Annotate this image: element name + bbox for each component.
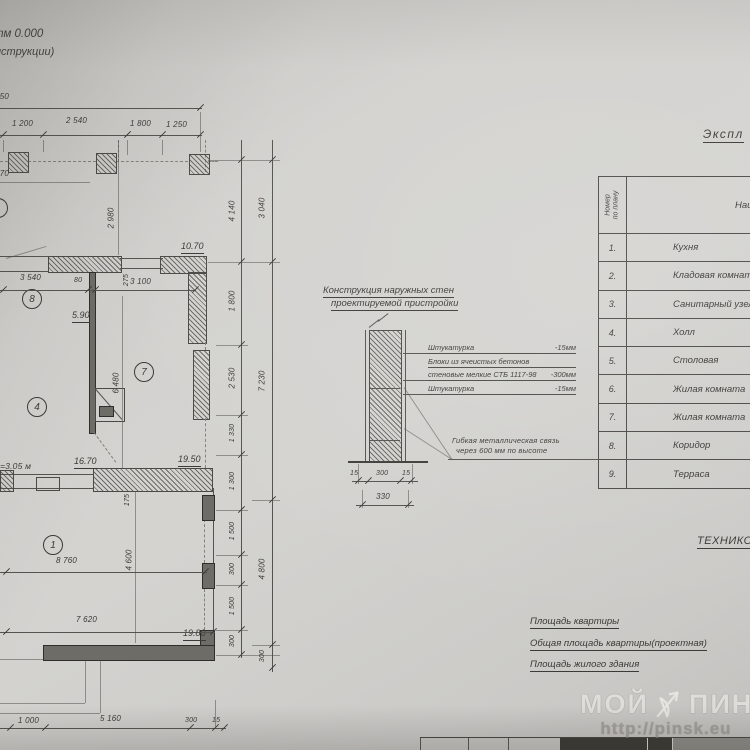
layer-label-row: Блоки из ячеистых бетонов [428,357,576,368]
leader-line [404,428,452,460]
axis-line [205,418,206,468]
room-number-circle: 1 [43,535,63,555]
dimension-line [241,140,242,658]
row-name: Коридор [627,432,710,459]
detail-note-line2: через 600 мм по высоте [456,447,547,455]
extension-line [216,555,248,556]
wall [188,272,207,344]
column [96,153,117,174]
block-joint [370,440,400,441]
explication-header-row: Номер по плану Наимен [599,177,750,233]
num-header-line2: по плану [612,191,619,220]
wall-pier [202,495,215,521]
watermark: МОЙ ПИНСК http://pinsk.eu [580,688,750,739]
column [8,152,29,173]
window [36,477,60,491]
dim-label: 15 [212,717,220,725]
extension-line [216,415,248,416]
dim-label: 1 000 [18,717,39,726]
break-symbol [378,313,389,322]
room-area-label: 16.70 [74,457,97,469]
room-number-circle: 7 [134,362,154,382]
room-number: 8 [29,294,35,305]
dim-label: 300 [185,717,197,725]
title-block-line [508,738,509,750]
block-joint [370,388,400,389]
dim-label: 7 620 [76,616,97,625]
layer-value: -15мм [555,384,576,393]
leader-line [404,387,453,460]
leader-line [403,380,428,381]
layer-value: -300мм [551,370,576,379]
dimension-line [135,492,136,643]
title-block-line [468,738,469,750]
dim-label: 1 200 [12,120,33,129]
note-underline [448,459,606,460]
row-number: 8. [599,432,627,459]
row-number: 4. [599,319,627,346]
pinsk-logo-icon [654,688,684,720]
title-block-dark-cell [560,738,672,750]
terrace-line [85,660,86,703]
wall-line [0,271,48,272]
dim-label: 300 [229,635,237,647]
extension-line [162,140,163,155]
extension-line [216,510,248,511]
axis-line [28,161,96,162]
axis-line [116,161,188,162]
layer-name: стеновые мелкие СТБ 1117-98 [428,370,537,379]
dim-label: 3 100 [130,278,151,287]
row-name: Терраса [627,460,710,487]
row-number: 1. [599,234,627,261]
axis-line [0,161,8,162]
dim-label: 300 [229,563,237,575]
name-header-cell: Наимен [627,177,750,233]
num-header-line1: Номер [604,194,611,216]
table-row: 6.Жилая комната [599,374,750,402]
layer-value: -15мм [555,343,576,352]
dim-label: 6 480 [113,372,122,393]
dimension-line [118,140,119,255]
dim-label: 3 040 [259,197,268,218]
detail-title-line2: проектируемой пристройки [331,299,458,311]
dimension-line [0,182,90,183]
extension-line [216,585,248,586]
dim-label: 1 300 [229,472,237,491]
row-name: Столовая [627,347,719,374]
dim-label: 1 950 [0,93,9,102]
wall-line [0,659,43,660]
room-number: 4 [34,402,40,413]
table-row: 7.Жилая комната [599,403,750,431]
watermark-brand-right: ПИНСК [689,689,750,720]
dim-label: 1 250 [166,121,187,130]
detail-note-line1: Гибкая металлическая связь [452,437,560,445]
dim-label: 330 [376,493,390,502]
dim-label: 1 500 [229,522,237,541]
layer-label-row: Штукатурка -15мм [428,384,576,395]
blueprint-photo: тм 0.000 нструкции) 1 950 1 200 2 540 1 … [0,0,750,750]
extension-line [127,140,128,155]
tech-line3: Площадь жилого здания [530,660,639,672]
dim-label: 11 770 [0,170,9,179]
row-number: 2. [599,262,627,289]
window-line [120,268,163,269]
exterior-wall [43,645,215,661]
room-number-circle: 8 [22,289,42,309]
dim-label: 7 230 [259,370,268,391]
wall-line [204,589,205,630]
row-number: 5. [599,347,627,374]
watermark-url: http://pinsk.eu [580,719,750,739]
dim-label: 1 500 [229,597,237,616]
row-name: Кухня [627,234,698,261]
tick-mark [197,104,204,111]
layer-name: Штукатурка [428,384,474,393]
extension-line [3,140,4,152]
table-row: 4.Холл [599,318,750,346]
dim-label: 80 [74,277,82,285]
extension-line [216,630,248,631]
dimension-line [272,140,273,672]
dim-label: 4 140 [229,200,238,221]
wall [0,470,14,492]
column [189,154,210,175]
row-number: 6. [599,375,627,402]
room-number: 1 [50,540,56,551]
title-block-line [647,738,648,750]
room-number: 7 [141,367,147,378]
extension-line [252,500,280,501]
elevation-note-line2: нструкции) [0,46,54,58]
wall-pier [202,563,215,589]
layer-label-row: стеновые мелкие СТБ 1117-98 -300мм [428,370,576,381]
dim-label: 8 760 [56,557,77,566]
dimension-line [0,290,196,291]
extension-line [216,345,248,346]
height-note: =3.05 м [0,462,31,471]
dimension-line [0,108,202,109]
watermark-brand-left: МОЙ [580,689,649,720]
dim-label: 1 800 [130,120,151,129]
layer-label-row: Штукатурка -15мм [428,343,576,354]
plaster-line [365,330,366,461]
plaster-line [405,330,406,461]
extension-line [43,140,44,152]
dim-label: 15 [350,470,358,478]
terrace-line [0,703,85,704]
explication-table: Номер по плану Наимен 1.Кухня 2.Кладовая… [598,176,750,489]
room-area-label: 19.50 [178,455,201,467]
extension-line [216,655,280,656]
table-row: 2.Кладовая комната [599,261,750,289]
terrace-line [100,660,101,713]
extension-line [252,645,280,646]
table-row: 5.Столовая [599,346,750,374]
row-number: 7. [599,404,627,431]
dim-label: 5 160 [100,715,121,724]
dim-label: 275 [123,274,131,286]
row-name: Кладовая комната [627,262,750,289]
explication-title: Экспл [703,128,744,143]
row-name: Жилая комната [627,404,745,431]
extension-line [200,112,201,152]
table-row: 8.Коридор [599,431,750,459]
layer-name: Штукатурка [428,343,474,352]
dim-label: 2 530 [229,367,238,388]
dim-label: 2 540 [66,117,87,126]
leader-line [403,394,428,395]
table-row: 3.Санитарный узел [599,290,750,318]
door-swing [94,432,117,462]
ground-line [348,461,428,463]
door-swing [6,246,47,259]
dim-label: 4 600 [126,549,135,570]
row-name: Санитарный узел [627,291,750,318]
room-area-label: 10.70 [181,242,204,254]
dim-label: 4 800 [259,558,268,579]
tech-title: ТЕХНИКО- [697,535,750,549]
dimension-line [0,728,226,729]
dimension-line [122,296,123,468]
watermark-brand: МОЙ ПИНСК [580,688,750,720]
row-number: 9. [599,460,627,487]
axis-line [205,342,206,350]
wall-line [204,519,205,563]
row-name: Холл [627,319,695,346]
tech-line2: Общая площадь квартиры(проектная) [530,639,707,651]
wall [48,256,122,273]
dimension-line [0,135,202,136]
dim-label: 2 980 [108,207,117,228]
extension-line [216,455,248,456]
tick-mark [221,724,228,731]
window-line [120,258,163,259]
dim-label: 175 [124,494,132,506]
room-area-label: 19.80 [183,629,206,641]
row-name: Жилая комната [627,375,745,402]
room-number-circle: 4 [27,397,47,417]
detail-title-line1: Конструкция наружных стен [323,286,454,298]
elevation-note-line1: тм 0.000 [0,28,43,41]
dim-label: 300 [376,470,388,478]
wall [193,350,210,420]
extension-line [215,700,216,728]
leader-line [403,353,428,354]
table-row: 1.Кухня [599,233,750,261]
title-block-cell [672,738,750,750]
table-row: 9.Терраса [599,459,750,487]
terrace-line [0,713,100,714]
room-area-label: 5.90 [72,311,90,323]
dim-label: 1 330 [229,424,237,443]
wall [93,468,213,492]
dim-label: 1 800 [229,290,238,311]
num-header-cell: Номер по плану [599,177,627,233]
title-block-line [420,738,421,750]
dim-label: 3 540 [20,274,41,283]
dim-label: 300 [259,650,267,662]
layer-name: Блоки из ячеистых бетонов [428,357,529,366]
dimension-line [0,632,215,633]
tech-line1: Площадь квартиры [530,617,619,629]
kitchen-sink [99,406,114,417]
dimension-line [0,572,207,573]
wall-section [369,330,402,462]
room-number-circle [0,198,8,218]
row-number: 3. [599,291,627,318]
